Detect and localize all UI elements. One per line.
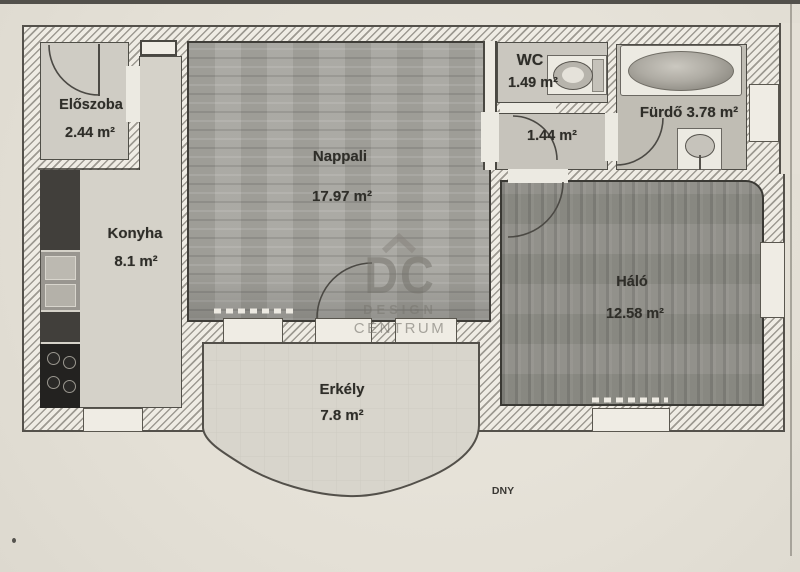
watermark-line1: DESIGN: [363, 302, 437, 317]
room-area-konyha: 8.1 m²: [114, 253, 157, 270]
halo-door-arc: [508, 182, 563, 237]
room-label-konyha: Konyha: [107, 225, 162, 242]
watermark-line2: CENTRUM: [354, 320, 447, 337]
room-label-erkely: Erkély: [319, 381, 364, 398]
furdo-area: 3.78 m²: [686, 104, 738, 121]
room-area-erkely: 7.8 m²: [320, 407, 363, 424]
room-area-nappali: 17.97 m²: [312, 188, 372, 205]
room-label-wc: WC: [517, 52, 544, 70]
room-label-halo: Háló: [616, 274, 647, 290]
furdo-name: Fürdő: [640, 104, 683, 121]
room-area-halo: 12.58 m²: [606, 306, 664, 322]
orientation-label: DNY: [492, 485, 514, 497]
scan-speck: [12, 538, 16, 543]
scan-edge-top: [0, 0, 800, 4]
entry-door-arc: [49, 45, 99, 95]
floorplan-scan: DC DESIGN CENTRUM Előszoba 2.44 m² Konyh…: [0, 0, 800, 572]
room-label-eloszoba: Előszoba: [59, 97, 123, 113]
room-label-furdo: Fürdő 3.78 m²: [640, 104, 738, 121]
floorplan: DC DESIGN CENTRUM Előszoba 2.44 m² Konyh…: [0, 0, 800, 572]
furdo-door-arc: [616, 118, 663, 165]
watermark-logo: DC: [364, 246, 435, 306]
room-label-nappali: Nappali: [313, 148, 367, 165]
room-area-eloszoba: 2.44 m²: [65, 125, 115, 141]
scan-edge-right: [790, 4, 792, 556]
room-area-hall: 1.44 m²: [527, 128, 577, 144]
room-area-wc: 1.49 m²: [508, 75, 558, 91]
